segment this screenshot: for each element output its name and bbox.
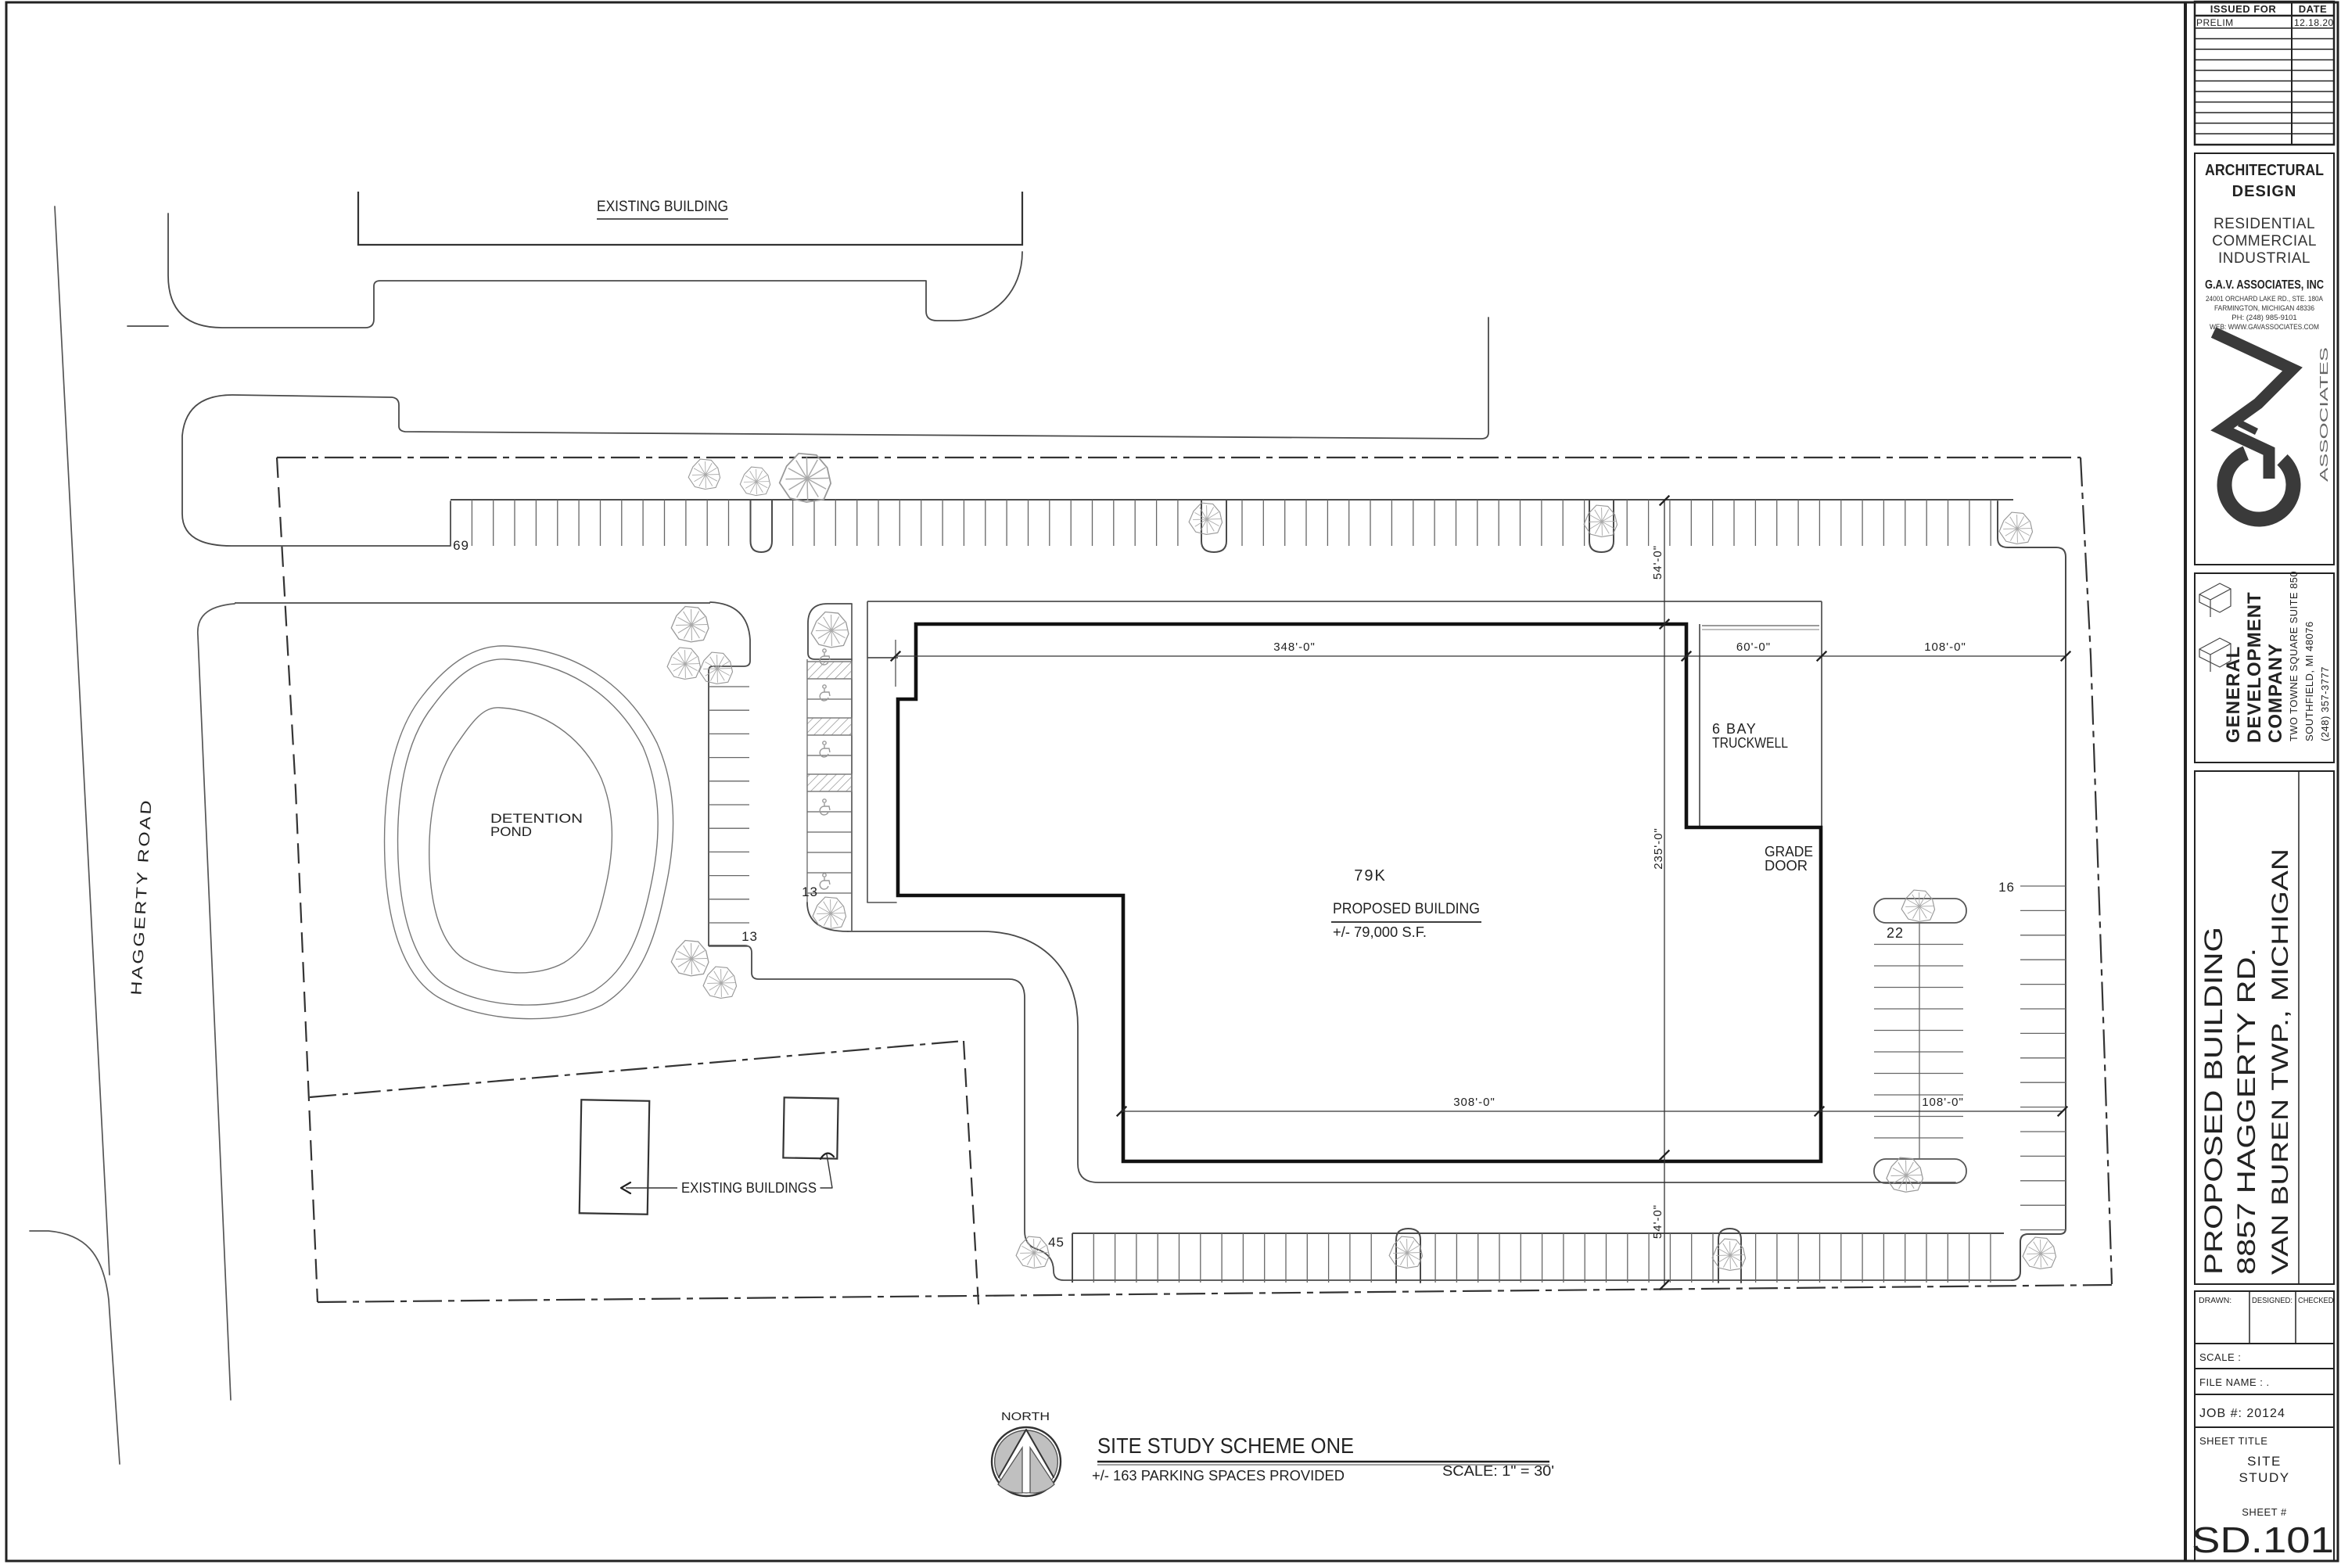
svg-text:FARMINGTON, MICHIGAN 48336: FARMINGTON, MICHIGAN 48336 [2214,304,2314,313]
svg-text:SITE STUDY SCHEME ONE: SITE STUDY SCHEME ONE [1097,1433,1354,1458]
svg-text:WEB: WWW.GAVASSOCIATES.COM: WEB: WWW.GAVASSOCIATES.COM [2210,323,2319,332]
svg-text:8857 HAGGERTY RD.: 8857 HAGGERTY RD. [2232,948,2260,1275]
svg-text:45: 45 [1048,1235,1065,1250]
svg-text:JOB #: 20124: JOB #: 20124 [2199,1407,2285,1420]
svg-text:54'-0": 54'-0" [1651,545,1664,579]
svg-text:SD.101: SD.101 [2192,1520,2334,1560]
svg-text:69: 69 [453,538,469,553]
svg-text:SHEET #: SHEET # [2242,1506,2287,1518]
svg-text:SOUTHFIELD, MI 48076: SOUTHFIELD, MI 48076 [2303,621,2315,741]
svg-text:6 BAY: 6 BAY [1712,721,1757,737]
svg-text:PROPOSED BUILDING: PROPOSED BUILDING [2199,927,2228,1275]
svg-text:GRADE: GRADE [1765,844,1813,859]
svg-text:DEVELOPMENT: DEVELOPMENT [2244,591,2265,743]
svg-text:ASSOCIATES: ASSOCIATES [2318,347,2331,482]
svg-text:22: 22 [1887,925,1904,941]
svg-text:CHECKED:: CHECKED: [2298,1296,2336,1305]
svg-text:RESIDENTIAL: RESIDENTIAL [2214,216,2315,232]
svg-text:79K: 79K [1354,867,1387,884]
svg-text:G.A.V. ASSOCIATES, INC: G.A.V. ASSOCIATES, INC [2205,278,2324,292]
svg-text:INDUSTRIAL: INDUSTRIAL [2218,250,2310,267]
svg-text:SITE: SITE [2247,1454,2282,1469]
svg-text:108'-0": 108'-0" [1922,1096,1964,1109]
svg-text:PROPOSED BUILDING: PROPOSED BUILDING [1333,901,1480,917]
svg-text:TRUCKWELL: TRUCKWELL [1712,735,1788,751]
svg-text:ARCHITECTURAL: ARCHITECTURAL [2205,162,2324,179]
svg-text:108'-0": 108'-0" [1924,640,1966,654]
svg-text:NORTH: NORTH [1001,1410,1050,1423]
svg-text:60'-0": 60'-0" [1736,640,1771,654]
svg-text:348'-0": 348'-0" [1273,640,1316,654]
svg-text:235'-0": 235'-0" [1652,827,1665,870]
svg-text:308'-0": 308'-0" [1453,1096,1495,1109]
svg-text:SCALE :: SCALE : [2199,1351,2241,1363]
svg-text:DRAWN:: DRAWN: [2199,1296,2231,1305]
svg-text:PH: (248) 985-9101: PH: (248) 985-9101 [2231,314,2296,322]
svg-text:24001 ORCHARD LAKE RD., STE. 1: 24001 ORCHARD LAKE RD., STE. 180A [2206,295,2324,303]
svg-text:COMPANY: COMPANY [2265,643,2286,743]
svg-text:ISSUED FOR: ISSUED FOR [2210,3,2277,15]
svg-text:EXISTING BUILDING: EXISTING BUILDING [597,199,728,215]
svg-text:STUDY: STUDY [2239,1470,2289,1485]
svg-text:12.18.20: 12.18.20 [2294,17,2334,28]
svg-text:13: 13 [741,929,758,944]
svg-text:FILE NAME : .: FILE NAME : . [2199,1376,2270,1388]
svg-text:PRELIM: PRELIM [2196,17,2234,28]
svg-text:COMMERCIAL: COMMERCIAL [2212,233,2317,249]
svg-text:SCALE: 1" = 30': SCALE: 1" = 30' [1442,1463,1554,1479]
svg-text:DESIGNED:: DESIGNED: [2252,1296,2293,1305]
svg-text:VAN BUREN TWP., MICHIGAN: VAN BUREN TWP., MICHIGAN [2267,849,2293,1275]
svg-text:DOOR: DOOR [1765,858,1808,874]
svg-text:SHEET TITLE: SHEET TITLE [2199,1435,2267,1447]
svg-text:+/- 163 PARKING SPACES PROVIDE: +/- 163 PARKING SPACES PROVIDED [1092,1468,1345,1484]
svg-text:EXISTING BUILDINGS: EXISTING BUILDINGS [681,1180,817,1196]
svg-text:16: 16 [1998,880,2015,895]
svg-text:POND: POND [490,824,532,839]
svg-text:(248) 357-3777: (248) 357-3777 [2319,666,2331,741]
svg-text:+/- 79,000 S.F.: +/- 79,000 S.F. [1333,924,1427,940]
svg-text:DESIGN: DESIGN [2232,183,2297,200]
svg-text:GENERAL: GENERAL [2223,646,2244,743]
svg-text:13: 13 [802,884,818,899]
svg-text:DATE: DATE [2299,3,2327,15]
svg-text:54'-0": 54'-0" [1651,1204,1664,1239]
svg-text:TWO TOWNE SQUARE SUITE 850: TWO TOWNE SQUARE SUITE 850 [2288,571,2300,741]
